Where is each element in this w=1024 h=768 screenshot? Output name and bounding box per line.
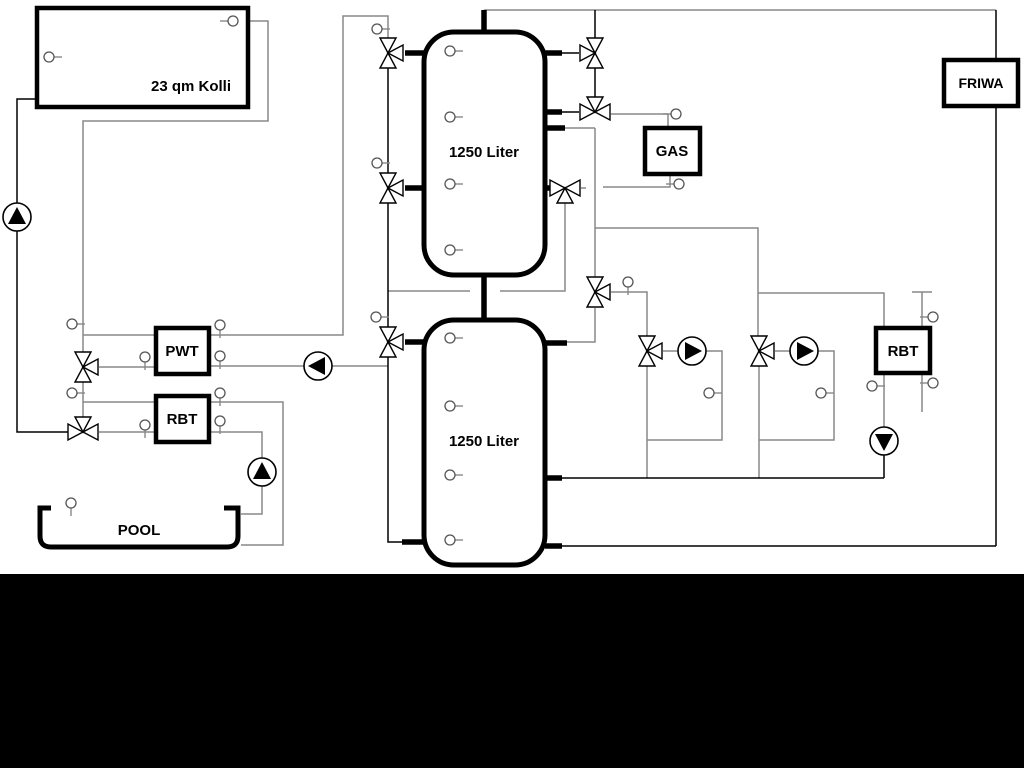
pump-up-icon [3, 203, 31, 231]
tank2-label: 1250 Liter [449, 433, 519, 450]
pump-down-icon [870, 427, 898, 455]
bottom-black-band [0, 574, 1024, 768]
gas-label: GAS [656, 143, 689, 160]
schematic-canvas: 23 qm Kolli 1250 Liter 1250 Liter GAS FR… [0, 0, 1024, 768]
pump-up-icon [248, 458, 276, 486]
pwt-label: PWT [165, 343, 198, 360]
rbt-heat-exchanger-left: RBT [156, 396, 209, 442]
tank1-label: 1250 Liter [449, 144, 519, 161]
pump-right-icon [678, 337, 706, 365]
collector-label: 23 qm Kolli [151, 78, 231, 95]
rbt-heat-exchanger-right: RBT [876, 328, 930, 373]
rbt-left-label: RBT [167, 411, 198, 428]
buffer-tank-bottom: 1250 Liter [424, 320, 545, 565]
friwa-station: FRIWA [944, 60, 1018, 106]
solar-collector: 23 qm Kolli [37, 8, 248, 107]
gas-boiler: GAS [645, 128, 700, 174]
pump-left-icon [304, 352, 332, 380]
friwa-label: FRIWA [958, 75, 1003, 91]
buffer-tank-top: 1250 Liter [424, 32, 545, 275]
pool-label: POOL [118, 522, 161, 539]
rbt-right-label: RBT [888, 343, 919, 360]
schematic-page: 23 qm Kolli 1250 Liter 1250 Liter GAS FR… [0, 0, 1024, 768]
pwt-heat-exchanger: PWT [156, 328, 209, 374]
pump-right-icon [790, 337, 818, 365]
